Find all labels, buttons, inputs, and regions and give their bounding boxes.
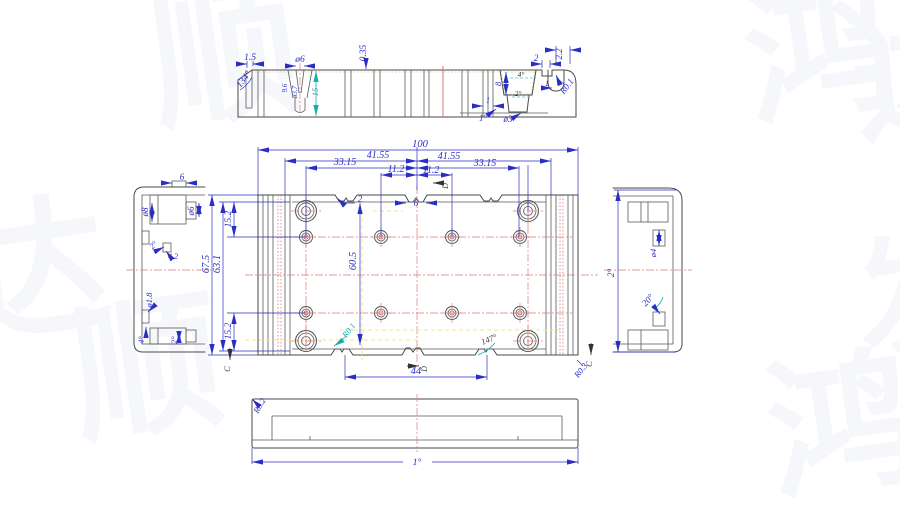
dim-label: 4.2 xyxy=(168,252,178,261)
page: { "drawing_title": "sheet-metal-enclosur… xyxy=(0,0,900,500)
dim-label: 2° xyxy=(606,269,617,278)
dim-label: ø3 xyxy=(503,114,514,124)
hole-centerline xyxy=(291,326,321,356)
dim-label: 60.5 xyxy=(348,252,359,270)
dim-label: ø3.7 xyxy=(291,85,299,99)
dim-label: 20° xyxy=(640,292,656,308)
dim-label: 1° xyxy=(479,113,488,123)
dim-label: ø6 xyxy=(186,206,196,217)
dim-label: 6 xyxy=(180,172,185,182)
dim-label: 100 xyxy=(412,139,429,150)
dim-label: 6 xyxy=(414,198,419,208)
dim-label: 2 xyxy=(534,53,539,63)
dim-label: 67.5 xyxy=(201,255,212,273)
dim-label: 9.6 xyxy=(281,83,289,92)
dim-label: 1.5 xyxy=(244,53,256,63)
dim-label: 15.2 xyxy=(224,210,234,227)
top-section-view: 1.5ø60.35134°9.6ø3.7154°2°811°ø3212.2R0.… xyxy=(234,44,578,124)
dim-label: 2 xyxy=(358,194,363,204)
dim-label: 0.35 xyxy=(359,44,369,61)
dim-label: R0.1 xyxy=(557,76,576,96)
hole-centerline xyxy=(442,303,462,323)
dim-label: 1 xyxy=(545,79,549,88)
dim-label: 1° xyxy=(413,457,422,468)
dim-label: 1 xyxy=(486,96,490,105)
dim-label: 147° xyxy=(480,331,499,347)
hole-centerline xyxy=(510,303,530,323)
dim-label: C xyxy=(584,361,594,367)
dim-label: 41.55 xyxy=(367,150,390,161)
dim-label: D xyxy=(441,183,450,190)
dim-label: D xyxy=(420,366,429,373)
drawing-svg: 1.5ø60.35134°9.6ø3.7154°2°811°ø3212.2R0.… xyxy=(0,0,900,500)
right-side-view: 2°ø420° xyxy=(604,188,692,352)
dim-label: 134° xyxy=(234,69,254,90)
front-view: 10041.5541.5533.1533.1511.211.226D67.563… xyxy=(201,139,598,380)
dim-label: 33.15 xyxy=(333,157,357,168)
dim-label: 33.15 xyxy=(473,158,497,169)
bottom-view: R0.21° xyxy=(251,394,578,468)
dim-label: 4° xyxy=(518,70,525,79)
dim-label: 63.1 xyxy=(212,255,223,273)
dim-label: ø4 xyxy=(648,248,658,258)
dim-label: ø8 xyxy=(140,207,150,218)
dim-label: 11.2 xyxy=(388,164,405,175)
dim-label: ø6 xyxy=(294,55,305,65)
hole-centerline xyxy=(371,303,391,323)
dim-label: ø1.8 xyxy=(144,292,154,309)
dim-label: 11.2 xyxy=(423,165,440,176)
hole-centerline xyxy=(510,227,530,247)
dim-label: 2° xyxy=(515,89,522,98)
left-side-view: 6ø8ø62°4.2ø1.84°2° xyxy=(126,172,212,352)
dim-label: 4° xyxy=(136,336,146,344)
dim-label: 41.55 xyxy=(438,151,461,162)
dim-label: 2.2 xyxy=(554,48,564,60)
dim-label: 2° xyxy=(169,336,179,344)
dim-label: C xyxy=(222,366,232,372)
dim-label: 15.2 xyxy=(224,322,234,339)
dim-label: 15 xyxy=(310,88,320,97)
dim-label: R0.1 xyxy=(339,321,357,340)
